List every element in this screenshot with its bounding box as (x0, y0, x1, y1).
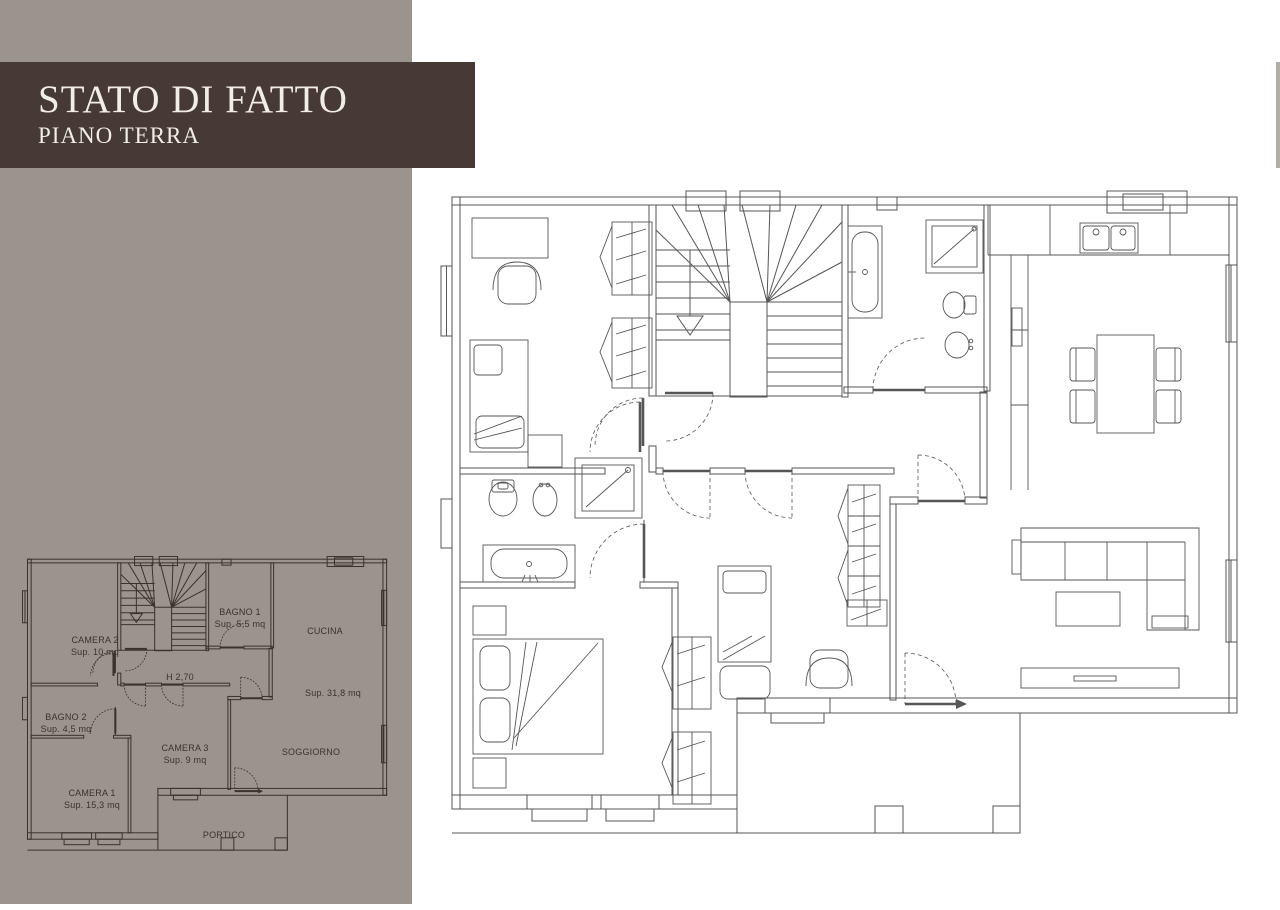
room-label-soggiorno: SOGGIORNO (261, 746, 361, 758)
area-label-cucina-soggiorno: Sup. 31,8 mq (283, 687, 383, 699)
room-label-cucina: CUCINA (275, 625, 375, 637)
large-floor-plan (440, 190, 1240, 910)
plan-title: STATO DI FATTO (38, 78, 475, 122)
room-label-camera2: CAMERA 2Sup. 10 mq (45, 634, 145, 658)
room-label-portico: PORTICO (174, 829, 274, 841)
room-label-camera1: CAMERA 1Sup. 15,3 mq (42, 787, 142, 811)
title-banner: STATO DI FATTO PIANO TERRA (0, 62, 475, 168)
plan-furniture (470, 205, 1229, 804)
plan-subtitle: PIANO TERRA (38, 122, 475, 150)
banner-right-sliver (1276, 62, 1280, 168)
page: { "title_block": { "title": "STATO DI FA… (0, 0, 1280, 904)
room-label-bagno2: BAGNO 2Sup. 4,5 mq (16, 711, 116, 735)
ceiling-height-label: H 2,70 (130, 671, 230, 683)
room-label-camera3: CAMERA 3Sup. 9 mq (135, 742, 235, 766)
small-floor-plan: CAMERA 2Sup. 10 mq BAGNO 1Sup. 5,5 mq CU… (22, 556, 388, 886)
